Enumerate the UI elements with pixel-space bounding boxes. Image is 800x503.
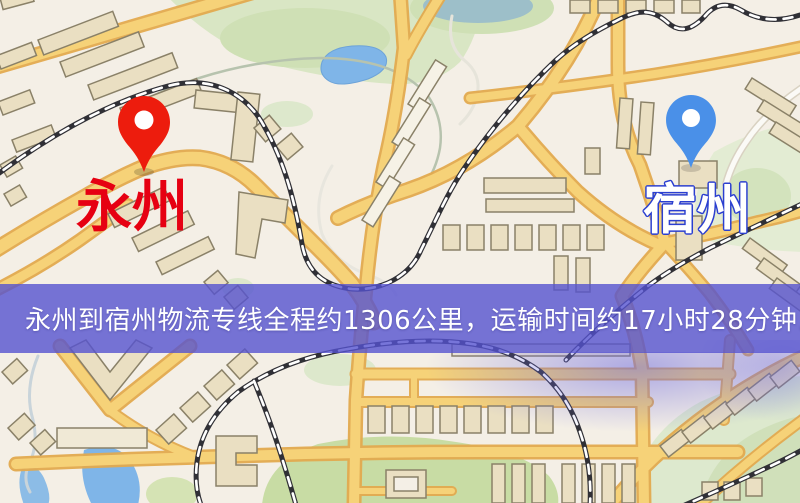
map-image: 永州 宿州 永州到宿州物流专线全程约1306公里，运输时间约17小时28分钟. <box>0 0 800 503</box>
route-info-text: 永州到宿州物流专线全程约1306公里，运输时间约17小时28分钟. <box>25 300 800 337</box>
origin-label: 永州 <box>76 175 188 240</box>
destination-label: 宿州 <box>643 178 751 241</box>
route-info-banner: 永州到宿州物流专线全程约1306公里，运输时间约17小时28分钟. <box>0 284 800 353</box>
map-canvas: 永州 宿州 <box>0 0 800 503</box>
